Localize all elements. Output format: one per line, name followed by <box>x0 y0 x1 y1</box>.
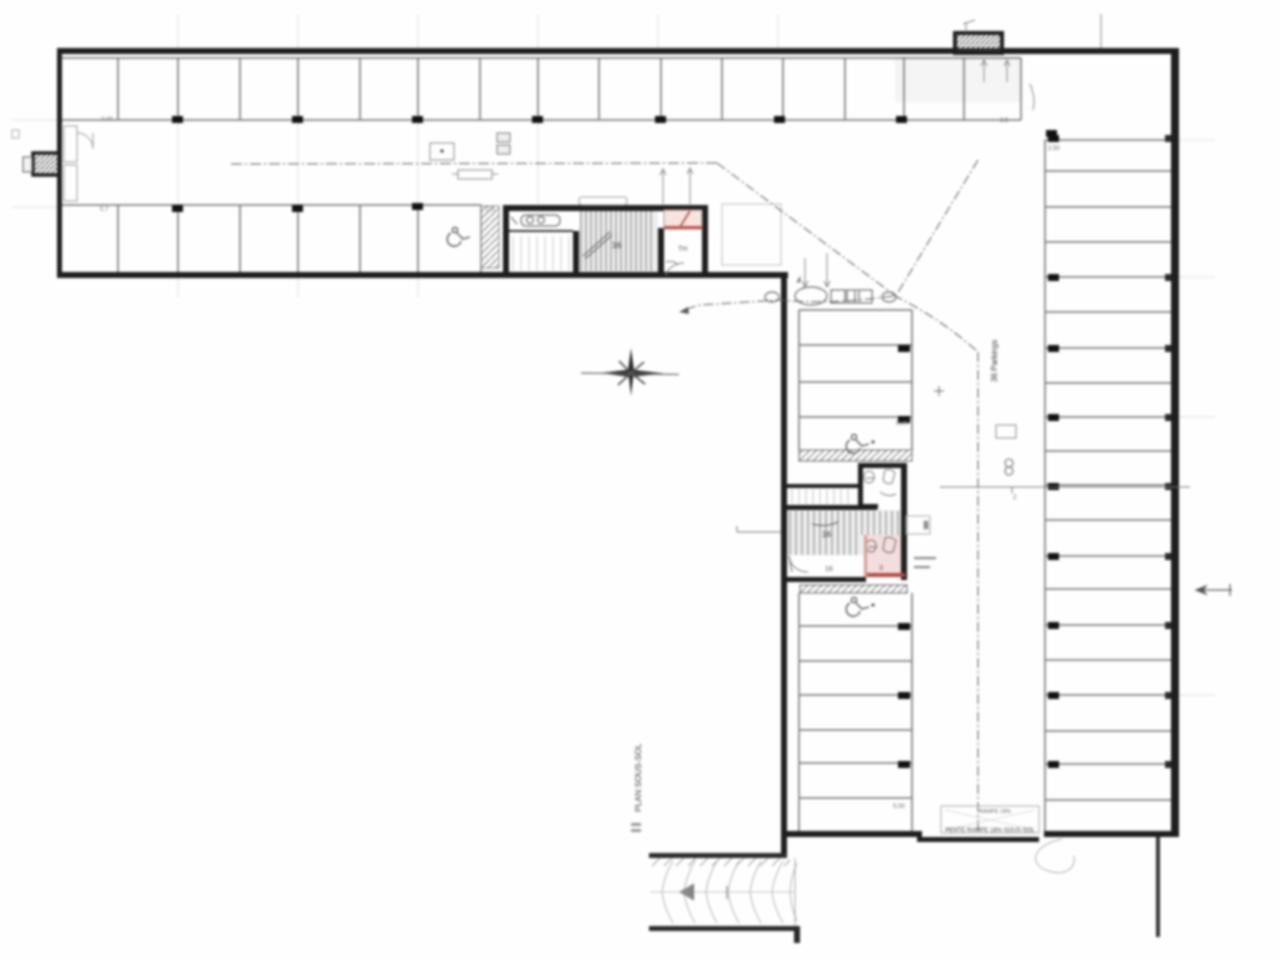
svg-text:2.6: 2.6 <box>486 207 495 213</box>
svg-text:PLAN SOUS-SOL: PLAN SOUS-SOL <box>633 743 643 812</box>
svg-text:PENTE RAMPE 18% SOUS-SOL: PENTE RAMPE 18% SOUS-SOL <box>945 828 1035 834</box>
svg-text:16: 16 <box>825 566 833 573</box>
svg-text:2.5: 2.5 <box>1000 118 1009 124</box>
svg-text:2.50: 2.50 <box>1048 146 1060 152</box>
svg-text:3: 3 <box>879 565 883 572</box>
svg-text:5.7: 5.7 <box>100 207 109 213</box>
svg-text:16: 16 <box>612 241 621 250</box>
svg-text:RAMPE 18%: RAMPE 18% <box>979 809 1011 815</box>
svg-text:3.00: 3.00 <box>101 117 113 123</box>
svg-text:TH: TH <box>678 246 687 253</box>
svg-text:5.00: 5.00 <box>893 804 905 810</box>
svg-text:6.25: 6.25 <box>896 421 908 427</box>
svg-text:16: 16 <box>822 530 831 539</box>
svg-text:36 Parkings: 36 Parkings <box>990 340 999 382</box>
